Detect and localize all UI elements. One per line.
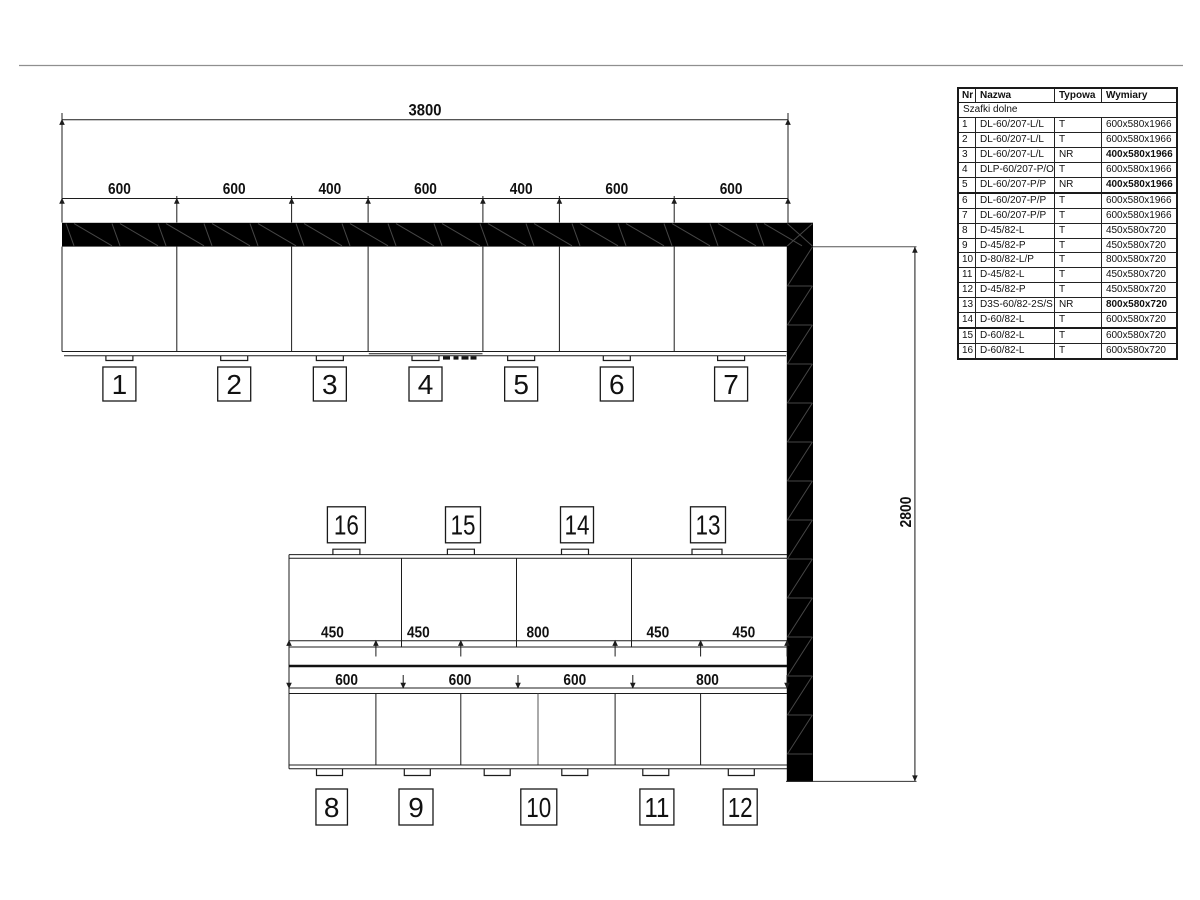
svg-text:600: 600 [605, 181, 628, 198]
svg-text:450: 450 [321, 625, 344, 642]
svg-text:12: 12 [728, 792, 753, 823]
svg-text:600: 600 [449, 672, 472, 689]
svg-text:3: 3 [322, 369, 338, 400]
svg-text:5: 5 [513, 369, 529, 400]
svg-text:8: 8 [324, 792, 340, 823]
svg-text:6: 6 [609, 369, 625, 400]
svg-text:450: 450 [732, 625, 755, 642]
svg-text:600: 600 [414, 181, 437, 198]
svg-text:600: 600 [335, 672, 358, 689]
svg-text:10: 10 [526, 792, 551, 823]
svg-text:600: 600 [108, 181, 131, 198]
svg-text:400: 400 [318, 181, 341, 198]
svg-text:600: 600 [720, 181, 743, 198]
svg-text:13: 13 [696, 510, 721, 541]
svg-text:1: 1 [112, 369, 128, 400]
svg-text:600: 600 [563, 672, 586, 689]
svg-text:7: 7 [723, 369, 739, 400]
svg-text:450: 450 [646, 625, 669, 642]
svg-text:400: 400 [510, 181, 533, 198]
svg-text:800: 800 [527, 625, 550, 642]
svg-text:2800: 2800 [898, 496, 915, 527]
svg-text:15: 15 [451, 510, 476, 541]
svg-text:2: 2 [226, 369, 242, 400]
svg-text:450: 450 [407, 625, 430, 642]
svg-text:3800: 3800 [409, 101, 442, 120]
svg-text:11: 11 [644, 792, 669, 823]
svg-text:14: 14 [565, 510, 590, 541]
svg-text:16: 16 [334, 510, 359, 541]
svg-text:9: 9 [408, 792, 424, 823]
svg-text:4: 4 [418, 369, 434, 400]
svg-text:800: 800 [696, 672, 719, 689]
svg-text:600: 600 [223, 181, 246, 198]
